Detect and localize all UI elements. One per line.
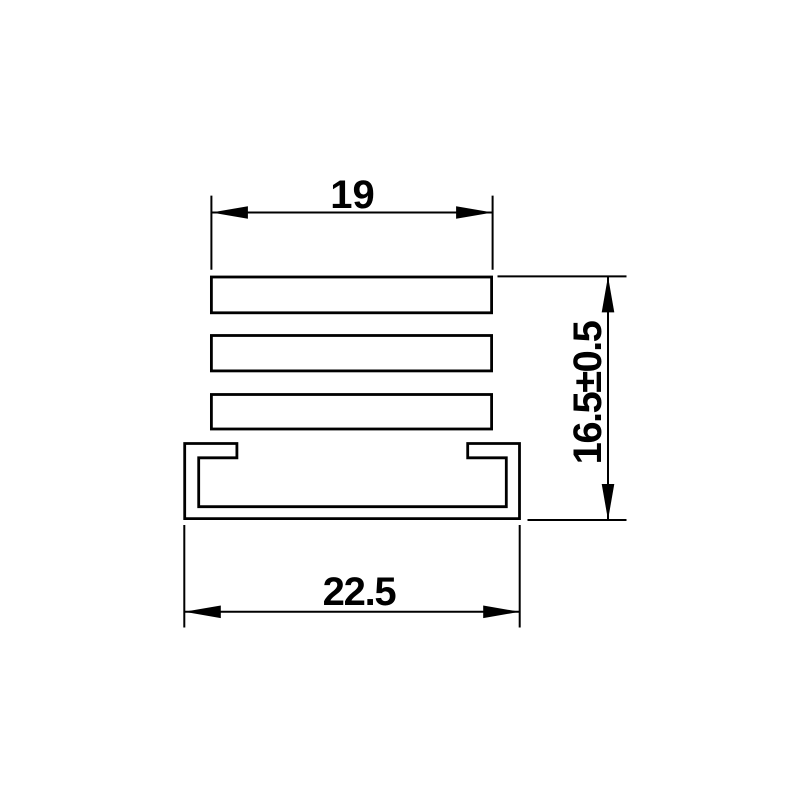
svg-text:22.5: 22.5 [323,570,397,614]
svg-text:16.5±0.5: 16.5±0.5 [566,320,610,464]
svg-text:19: 19 [330,173,375,217]
